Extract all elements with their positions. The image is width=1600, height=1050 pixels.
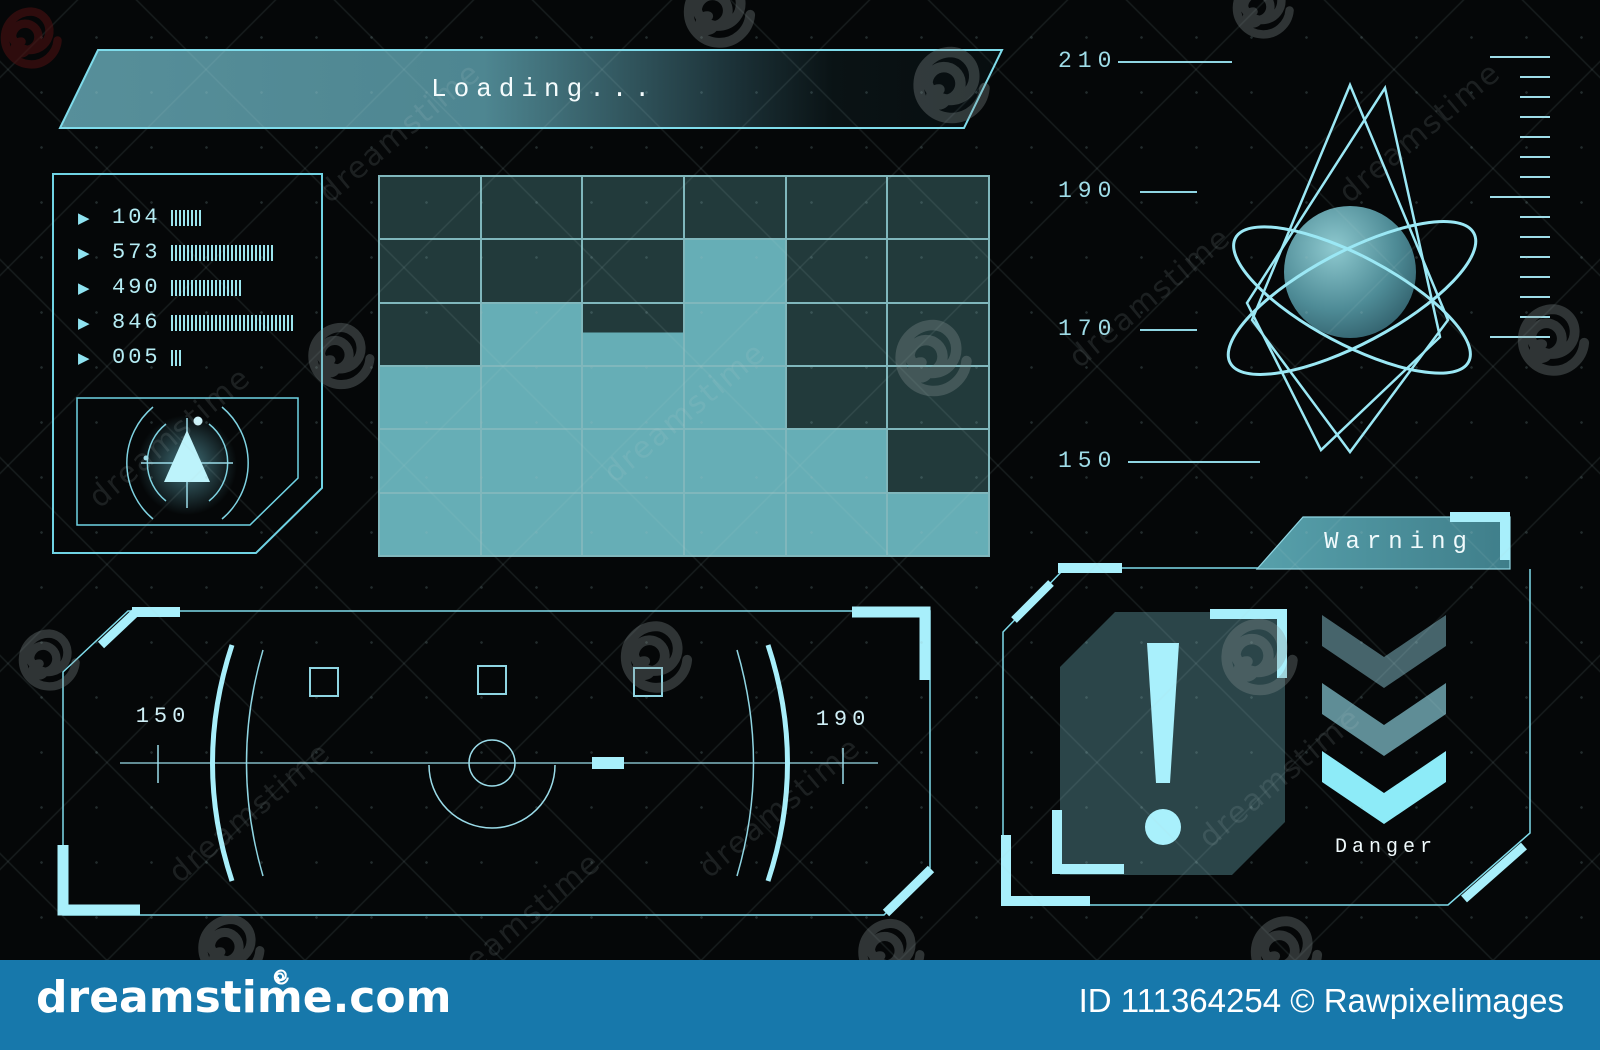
grid-cell	[583, 304, 683, 365]
list-item[interactable]: ▶490	[78, 270, 318, 305]
grid-cell	[482, 177, 582, 238]
grid-cell	[482, 240, 582, 301]
grid-cell	[583, 367, 683, 428]
play-arrow-icon: ▶	[78, 279, 112, 297]
list-item[interactable]: ▶573	[78, 235, 318, 270]
grid-cell	[787, 430, 887, 491]
ruler-tick	[1520, 176, 1550, 178]
signal-value: 846	[112, 310, 171, 335]
radar-display	[127, 407, 248, 519]
axis-tick-label: 210	[1058, 48, 1128, 74]
grid-cell	[380, 430, 480, 491]
grid-cell	[482, 494, 582, 555]
warning-banner-label[interactable]: Warning	[1300, 529, 1498, 556]
signal-value: 490	[112, 275, 171, 300]
grid-cell	[380, 177, 480, 238]
warning-panel	[1003, 517, 1530, 905]
grid-cell	[380, 240, 480, 301]
logo-spiral-icon	[266, 962, 296, 992]
signal-strength-bar	[171, 245, 275, 261]
axis-tick-label: 150	[1058, 448, 1128, 474]
play-arrow-icon: ▶	[78, 314, 112, 332]
danger-caption: Danger	[1324, 836, 1448, 859]
ruler-tick	[1520, 136, 1550, 138]
gauge-slider-handle[interactable]	[592, 757, 624, 769]
grid-cell	[787, 304, 887, 365]
axis-tick-label: 170	[1058, 316, 1128, 342]
signal-value: 005	[112, 345, 171, 370]
grid-cell	[380, 494, 480, 555]
planet-hologram	[1209, 85, 1496, 452]
signal-strength-bar	[171, 280, 243, 296]
grid-cell	[888, 494, 988, 555]
axis-tick-label: 190	[1058, 178, 1128, 204]
gauge-panel	[63, 607, 931, 915]
grid-cell	[888, 177, 988, 238]
grid-cell	[583, 430, 683, 491]
ruler-tick	[1520, 256, 1550, 258]
credit-bar: dreamstime.com ID 111364254 © Rawpixelim…	[0, 960, 1600, 1050]
signal-value: 573	[112, 240, 171, 265]
play-arrow-icon: ▶	[78, 349, 112, 367]
block-grid	[378, 175, 990, 557]
signal-strength-bar	[171, 315, 295, 331]
gauge-lower-arc	[429, 765, 555, 828]
list-item[interactable]: ▶846	[78, 305, 318, 340]
play-arrow-icon: ▶	[78, 209, 112, 227]
ruler-tick	[1520, 96, 1550, 98]
loading-label: Loading...	[194, 74, 894, 104]
ruler-tick	[1520, 216, 1550, 218]
dreamstime-logo: dreamstime.com	[36, 972, 451, 1023]
play-arrow-icon: ▶	[78, 244, 112, 262]
ruler-tick	[1490, 336, 1550, 338]
grid-cell	[787, 494, 887, 555]
gauge-panel-accents	[63, 607, 931, 913]
list-item[interactable]: ▶104	[78, 200, 318, 235]
danger-chevrons-icon	[1322, 615, 1446, 824]
grid-cell	[685, 494, 785, 555]
signal-strength-bar	[171, 210, 203, 226]
grid-cell	[888, 240, 988, 301]
grid-cell	[583, 494, 683, 555]
ruler-tick	[1520, 76, 1550, 78]
grid-cell	[787, 367, 887, 428]
signal-list: ▶104▶573▶490▶846▶005	[78, 200, 318, 375]
grid-cell	[482, 367, 582, 428]
list-item[interactable]: ▶005	[78, 340, 318, 375]
hud-screen: ▶104▶573▶490▶846▶005 Loading... 210 190 …	[0, 0, 1600, 1050]
image-credit: ID 111364254 © Rawpixelimages	[1079, 982, 1564, 1020]
ruler-tick	[1490, 196, 1550, 198]
ruler-tick	[1520, 316, 1550, 318]
grid-cell	[482, 430, 582, 491]
grid-cell	[685, 240, 785, 301]
grid-cell	[685, 367, 785, 428]
signal-strength-bar	[171, 350, 183, 366]
grid-cell	[888, 367, 988, 428]
grid-cell	[685, 177, 785, 238]
grid-cell	[583, 240, 683, 301]
grid-cell	[380, 367, 480, 428]
grid-cell	[888, 304, 988, 365]
ruler-tick	[1490, 56, 1550, 58]
grid-cell	[583, 177, 683, 238]
ruler	[1488, 56, 1550, 338]
grid-cell	[685, 304, 785, 365]
gauge-right-value: 190	[808, 707, 878, 732]
grid-cell	[787, 240, 887, 301]
ruler-tick	[1520, 296, 1550, 298]
ruler-tick	[1520, 156, 1550, 158]
ruler-tick	[1520, 276, 1550, 278]
grid-cell	[380, 304, 480, 365]
ruler-tick	[1520, 236, 1550, 238]
grid-cell	[888, 430, 988, 491]
radar-blip	[144, 456, 149, 461]
signal-value: 104	[112, 205, 171, 230]
radar-blip	[194, 417, 203, 426]
gauge-left-value: 150	[128, 704, 198, 729]
gauge-markers	[310, 666, 662, 696]
grid-cell	[685, 430, 785, 491]
grid-cell	[482, 304, 582, 365]
grid-cell	[787, 177, 887, 238]
ruler-tick	[1520, 116, 1550, 118]
